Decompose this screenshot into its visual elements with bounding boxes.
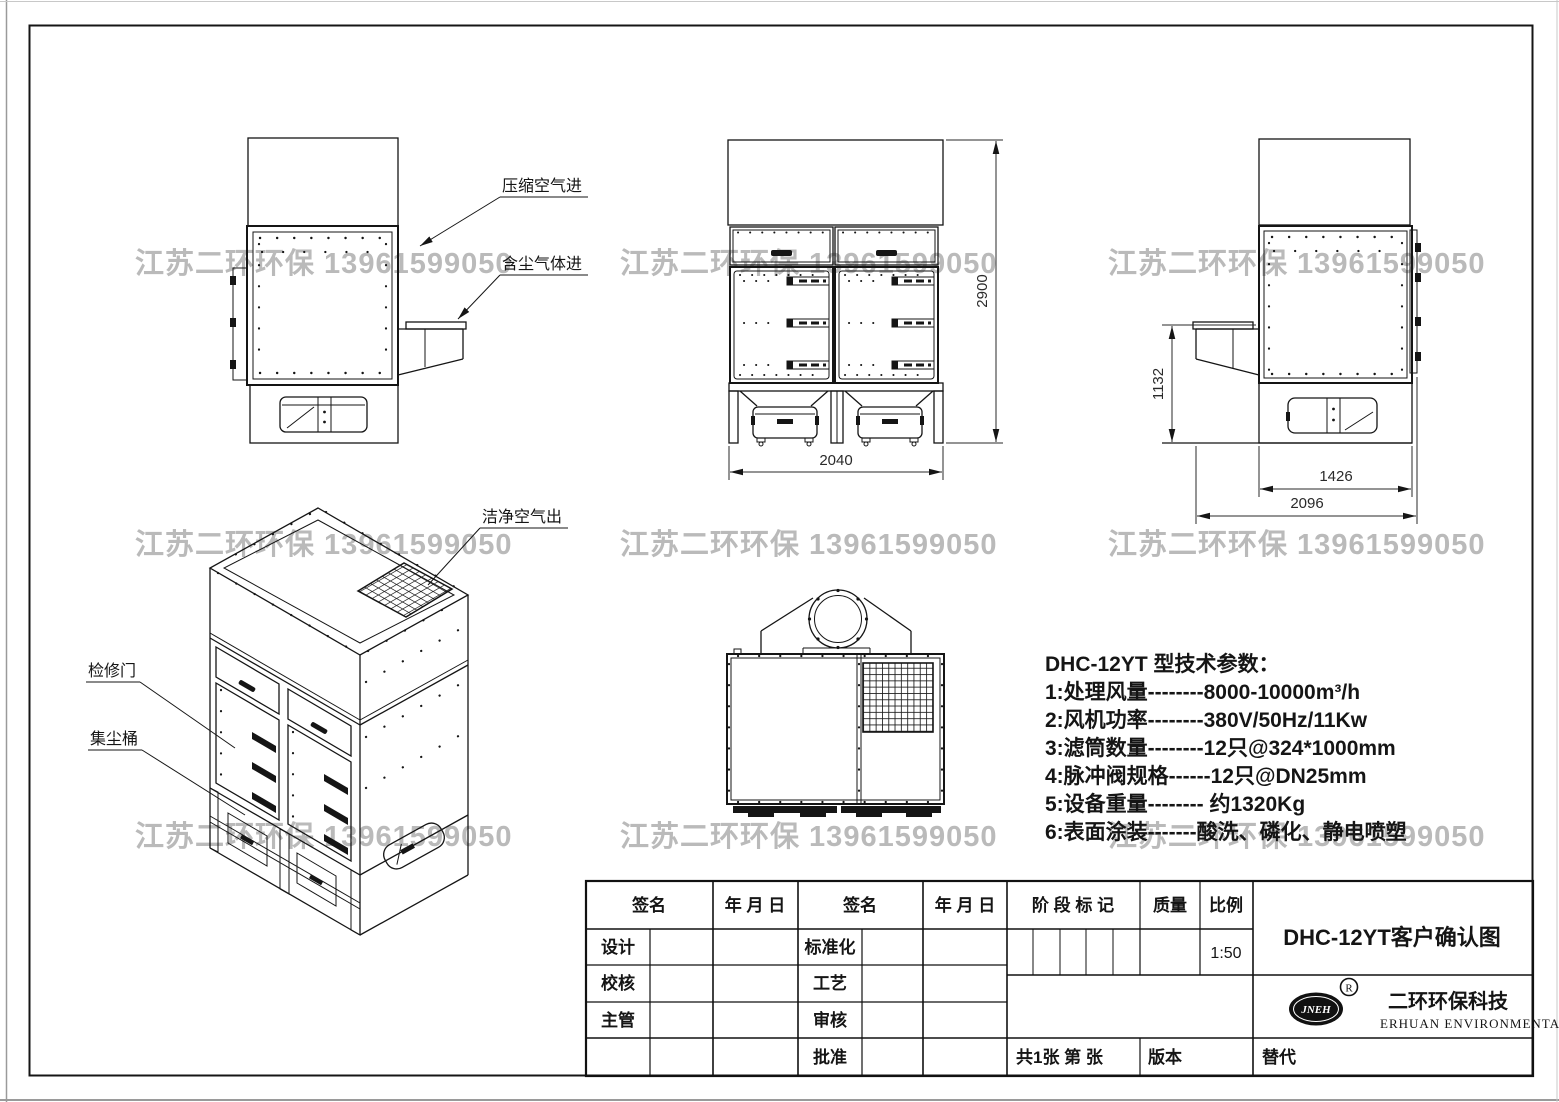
dust-barrel-2	[297, 853, 336, 906]
hopper-and-bin-right	[845, 391, 933, 446]
front-left-module	[730, 227, 833, 383]
label-dusty-gas-in: 含尘气体进	[502, 255, 582, 273]
row-process: 工艺	[813, 973, 847, 993]
dim-2096: 2096	[1290, 495, 1323, 512]
logo-text: JNEH	[1300, 1004, 1331, 1016]
drawing-title: DHC-12YT客户确认图	[1283, 925, 1501, 950]
hopper-and-bin-left	[740, 391, 828, 446]
parameter-line: 6:表面涂装-------酸洗、磷化、静电喷塑	[1045, 820, 1407, 844]
registered-icon: R	[1345, 983, 1353, 995]
inlet-duct	[398, 322, 466, 375]
header-sign-2: 签名	[842, 895, 877, 915]
header-sign-1: 签名	[631, 895, 666, 915]
parameter-line: 5:设备重量-------- 约1320Kg	[1045, 792, 1305, 816]
view-plan	[727, 589, 944, 817]
fan-inlet	[761, 589, 911, 654]
view-isometric	[210, 508, 468, 935]
dim-2040: 2040	[819, 452, 852, 469]
label-dust-barrel: 集尘桶	[90, 730, 138, 748]
header-stage-mark: 阶 段 标 记	[1032, 895, 1114, 915]
header-quality: 质量	[1153, 895, 1187, 915]
view-front	[728, 140, 943, 446]
row-review: 审核	[813, 1010, 847, 1030]
parameters-title: DHC-12YT 型技术参数：	[1045, 652, 1280, 676]
parameter-line: 1:处理风量--------8000-10000m³/h	[1045, 681, 1360, 704]
label-access-door: 检修门	[88, 662, 136, 680]
filter-brackets	[787, 277, 829, 369]
scale-value: 1:50	[1210, 945, 1241, 962]
replace-label: 替代	[1262, 1047, 1296, 1067]
header-date-1: 年 月 日	[725, 895, 785, 915]
label-clean-air-out: 洁净空气出	[482, 508, 562, 526]
row-standardization: 标准化	[805, 937, 856, 957]
sheet-info: 共1张 第 张	[1016, 1047, 1104, 1067]
row-check: 校核	[601, 973, 635, 993]
annotations: 压缩空气进 含尘气体进 洁净空气出 检修门 集尘桶	[86, 177, 588, 815]
row-design: 设计	[601, 937, 635, 957]
dim-2900: 2900	[974, 274, 991, 307]
front-right-module	[835, 227, 938, 383]
view-side-left	[230, 138, 466, 443]
drawing-sheet: 江苏二环环保 13961599050 江苏二环环保 13961599050 江苏…	[0, 0, 1559, 1102]
technical-parameters: DHC-12YT 型技术参数： 1:处理风量--------8000-10000…	[1045, 652, 1407, 844]
version-label: 版本	[1148, 1047, 1182, 1067]
header-date-2: 年 月 日	[935, 895, 995, 915]
row-supervisor: 主管	[601, 1010, 635, 1030]
company-name-cn: 二环环保科技	[1388, 989, 1509, 1013]
parameter-line: 4:脉冲阀规格------12只@DN25mm	[1045, 764, 1367, 788]
base-oval-slot	[380, 819, 449, 873]
dust-bin	[1286, 398, 1377, 433]
parameter-line: 2:风机功率--------380V/50Hz/11Kw	[1045, 708, 1368, 732]
company-logo: JNEH R	[1289, 979, 1358, 1026]
dust-barrel-1	[228, 813, 267, 866]
parameter-line: 3:滤筒数量--------12只@324*1000mm	[1045, 736, 1396, 760]
clean-air-outlet-grid	[358, 563, 452, 617]
label-compressed-air-in: 压缩空气进	[502, 177, 582, 195]
title-block: 签名 年 月 日 签名 年 月 日 阶 段 标 记 质量 比例 设计 校核 主管…	[586, 881, 1559, 1076]
row-approve: 批准	[813, 1047, 847, 1067]
header-scale: 比例	[1209, 895, 1243, 915]
company-name-en: ERHUAN ENVIRONMENTAL	[1380, 1016, 1559, 1031]
outlet-mesh	[863, 663, 933, 732]
dim-1426: 1426	[1319, 468, 1352, 485]
view-side-right	[1162, 139, 1421, 443]
inlet-duct	[1193, 322, 1259, 375]
dim-1132: 1132	[1150, 368, 1167, 400]
